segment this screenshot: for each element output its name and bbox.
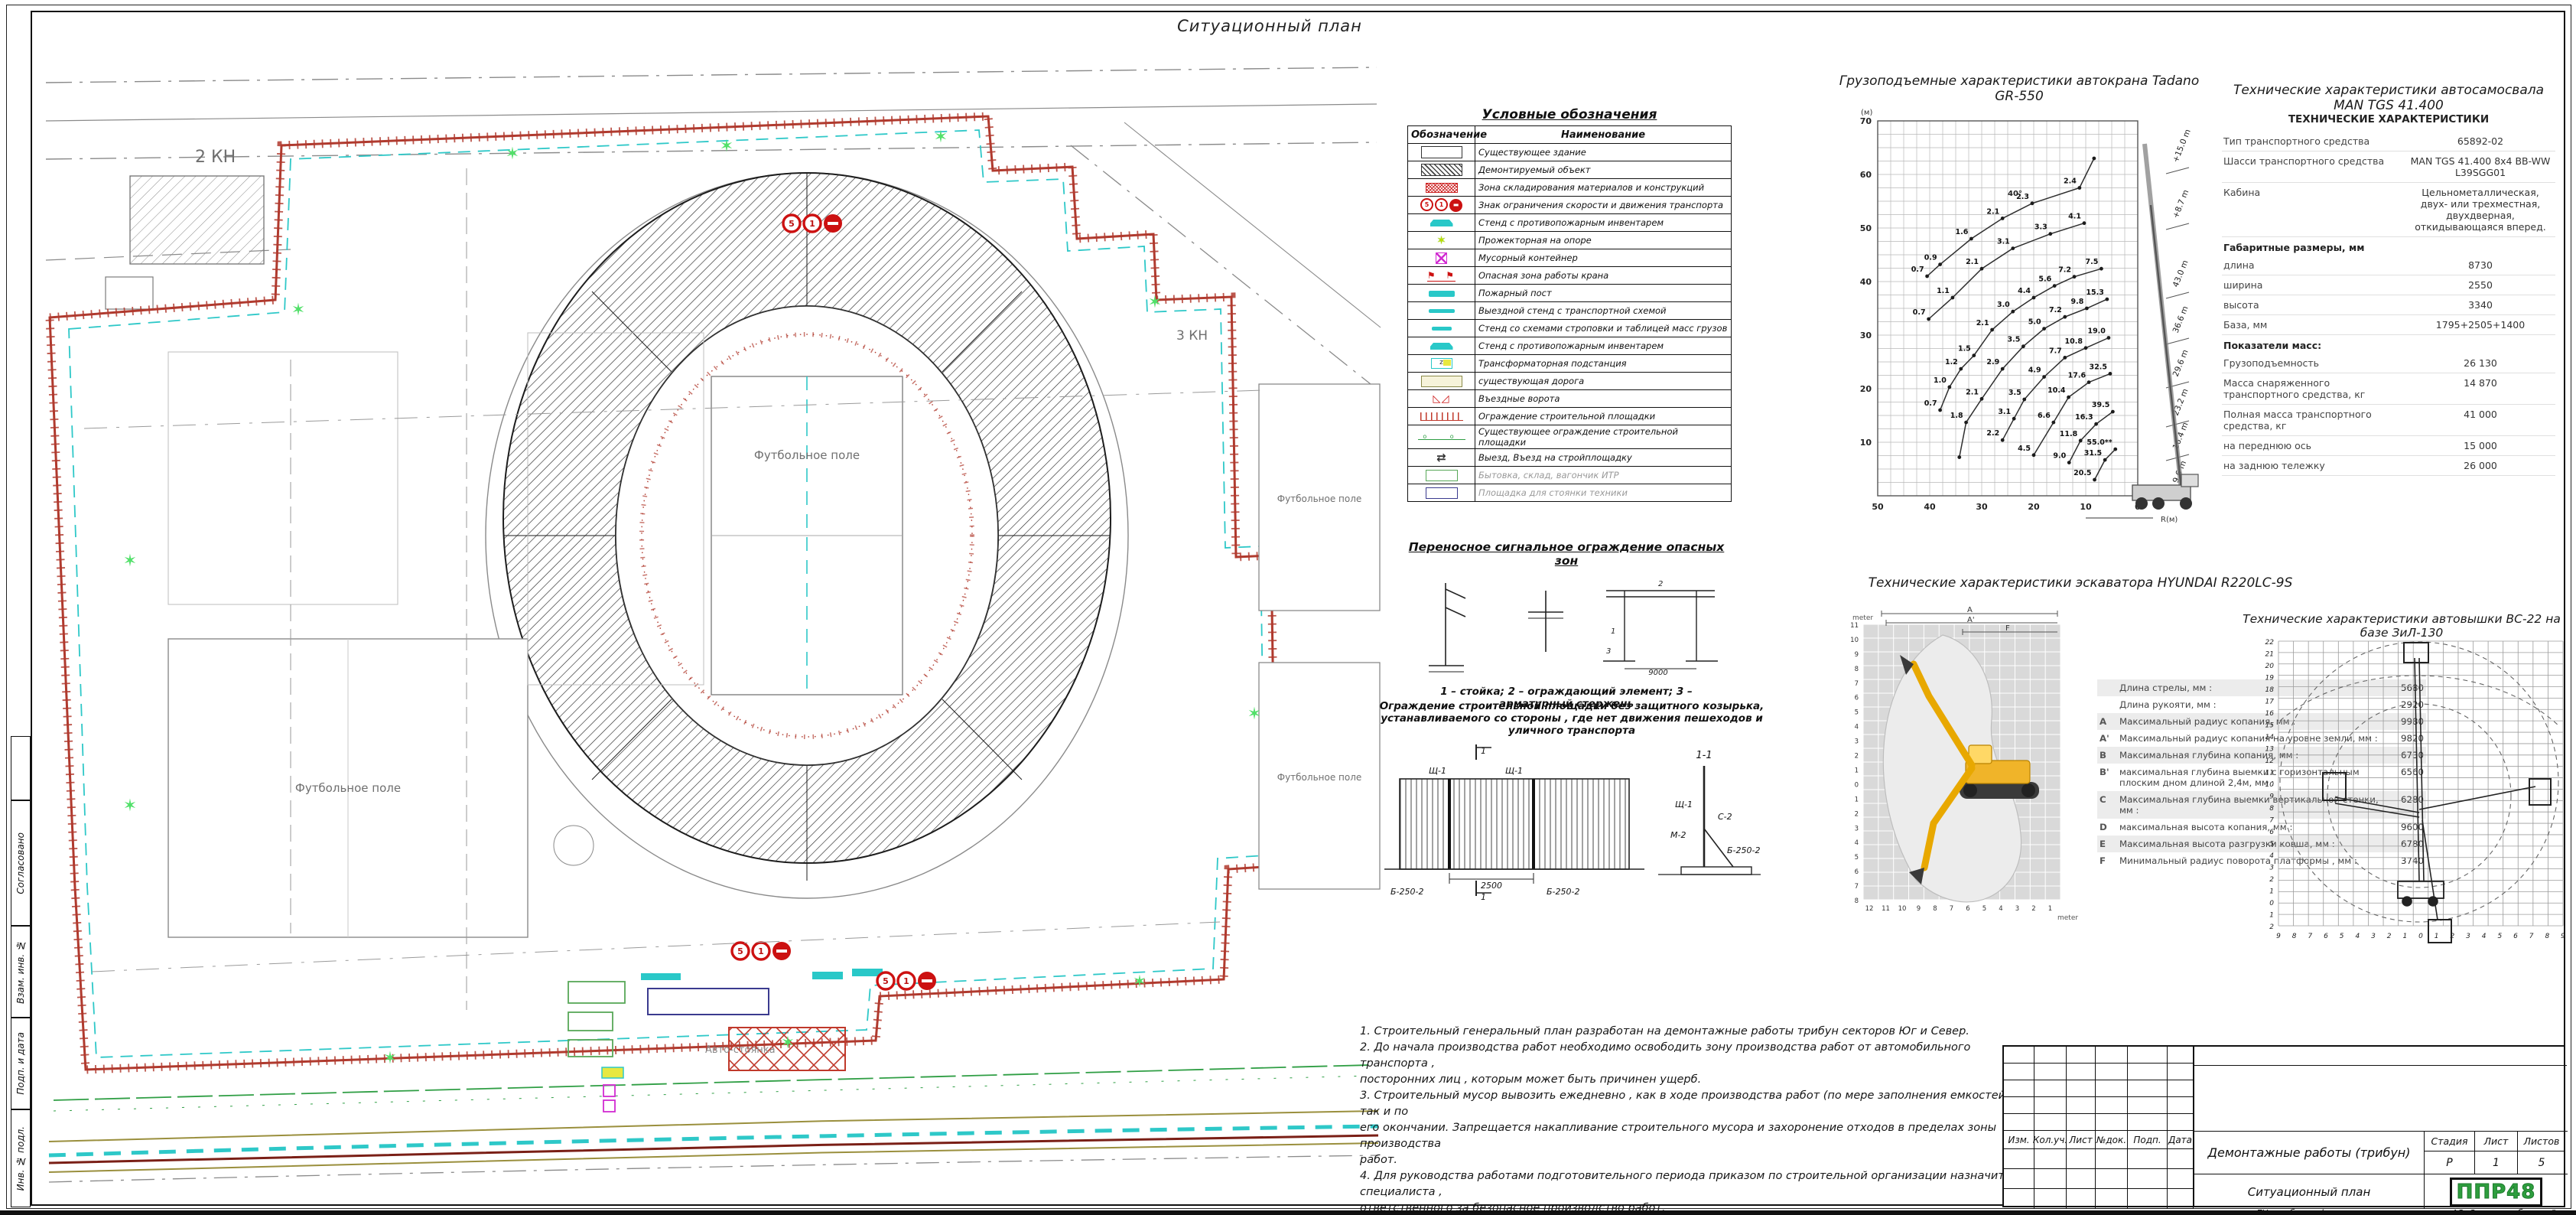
svg-text:10: 10 <box>1860 438 1872 448</box>
svg-text:8: 8 <box>1855 666 1859 673</box>
title-block: Изм.Кол.уч.Лист№док.Подп.Дата Демонтажны… <box>2002 1045 2565 1207</box>
svg-text:31.5: 31.5 <box>2084 449 2102 458</box>
svg-text:14: 14 <box>2265 734 2275 741</box>
rev-cell <box>2034 1064 2067 1080</box>
svg-text:2: 2 <box>1658 580 1663 588</box>
svg-text:4: 4 <box>2269 852 2274 860</box>
svg-text:Футбольное поле: Футбольное поле <box>1277 772 1362 783</box>
stamp-vzam-label: Взам. инв. № <box>15 940 26 1004</box>
svg-text:3: 3 <box>1855 738 1859 746</box>
svg-text:6: 6 <box>1855 695 1859 702</box>
rev-header: Лист <box>2067 1131 2096 1149</box>
stamp-inv: Инв. № подл. <box>11 1109 31 1207</box>
rev-cell <box>2034 1047 2067 1064</box>
svg-text:+15.0 m: +15.0 m <box>2171 128 2193 164</box>
svg-text:1: 1 <box>1481 892 1486 901</box>
svg-text:19: 19 <box>2265 675 2275 682</box>
man-section: Показатели масс: <box>2222 335 2555 353</box>
svg-text:1: 1 <box>1855 767 1859 774</box>
svg-text:36.6 m: 36.6 m <box>2171 305 2191 334</box>
svg-text:2.1: 2.1 <box>1976 319 1989 327</box>
existing-road-icon <box>1421 376 1462 387</box>
building-2kn: 2 КН <box>106 148 264 309</box>
svg-text:1: 1 <box>2402 933 2407 940</box>
svg-text:8: 8 <box>2269 805 2274 813</box>
man-title: Технические характеристики автосамосвала… <box>2218 83 2559 113</box>
svg-text:20.5: 20.5 <box>2073 469 2091 477</box>
fence-section-title1: Ограждение строительной площадки без защ… <box>1377 700 1767 712</box>
svg-text:8: 8 <box>2292 933 2297 940</box>
rev-cell <box>2004 1114 2034 1131</box>
svg-text:2.1: 2.1 <box>1986 207 1999 216</box>
svg-text:5: 5 <box>1855 709 1859 717</box>
stadium-field-label: Футбольное поле <box>754 448 860 462</box>
svg-text:F: F <box>2005 624 2010 633</box>
svg-text:0: 0 <box>2418 933 2423 940</box>
svg-text:20: 20 <box>1860 384 1872 394</box>
man-row: Полная масса транспортного средства, кг4… <box>2222 405 2555 436</box>
stadium: Футбольное поле <box>486 173 1128 898</box>
site-fence-icon <box>1420 412 1463 421</box>
legend-row: Демонтируемый объект <box>1408 161 1732 179</box>
man-section: Габаритные размеры, мм <box>2222 237 2555 256</box>
svg-text:10: 10 <box>2080 502 2092 512</box>
rev-header: Дата <box>2168 1131 2194 1149</box>
excavator-x-ticks: 121110987654321 <box>1865 905 2053 913</box>
rev-cell <box>2168 1169 2194 1189</box>
svg-text:1.8: 1.8 <box>1950 412 1963 420</box>
svg-text:4: 4 <box>1855 839 1859 847</box>
rev-cell <box>2034 1114 2067 1131</box>
svg-text:3.5: 3.5 <box>2008 389 2021 397</box>
svg-text:1: 1 <box>2048 905 2052 913</box>
stamp-agree-label: Согласовано <box>15 832 26 894</box>
man-row: высота3340 <box>2222 295 2555 315</box>
rev-cell <box>2128 1149 2168 1169</box>
legend-row: Ограждение строительной площадки <box>1408 408 1732 425</box>
svg-text:1: 1 <box>903 976 909 986</box>
svg-text:1: 1 <box>1611 627 1615 636</box>
drawing-sheet: Ситуационный план Согласовано Взам. инв.… <box>0 0 2576 1215</box>
svg-text:4: 4 <box>1999 905 2002 913</box>
svg-text:40: 40 <box>1924 502 1936 512</box>
fire-post-icon <box>1429 291 1455 297</box>
svg-text:2.9: 2.9 <box>1986 358 1999 366</box>
svg-text:17: 17 <box>2265 699 2275 706</box>
road-bottom <box>49 1111 1378 1182</box>
svg-text:2: 2 <box>2269 876 2274 884</box>
svg-text:✶: ✶ <box>291 301 305 320</box>
svg-text:Футбольное поле: Футбольное поле <box>295 781 401 795</box>
rev-cell <box>2067 1169 2096 1189</box>
crane-boom-labels: +15.0 m+8.7 m43.0 m36.6 m29.6 m23.2 m16.… <box>2166 128 2193 494</box>
svg-text:✶: ✶ <box>720 137 733 156</box>
rev-cell <box>2067 1047 2096 1064</box>
rev-cell <box>2034 1149 2067 1169</box>
man-row: КабинаЦельнометаллическая, двух- или тре… <box>2222 183 2555 237</box>
rev-cell <box>2034 1080 2067 1097</box>
rev-cell <box>2004 1047 2034 1064</box>
svg-text:4.4: 4.4 <box>2018 287 2031 295</box>
rev-cell <box>2168 1114 2194 1131</box>
svg-text:5: 5 <box>2269 841 2274 849</box>
svg-text:15.3: 15.3 <box>2086 288 2103 297</box>
svg-text:8: 8 <box>2545 933 2549 940</box>
legend-col-name: Наименование <box>1475 126 1732 144</box>
svg-text:(м): (м) <box>1861 109 1872 117</box>
rev-cell <box>2034 1097 2067 1114</box>
man-table: ТЕХНИЧЕСКИЕ ХАРАКТЕРИСТИКИ Тип транспорт… <box>2222 113 2555 476</box>
legend-row: 51▬Знак ограничения скорости и движения … <box>1408 197 1732 214</box>
svg-text:6: 6 <box>2324 933 2328 940</box>
tower-machine-icon <box>2323 643 2551 943</box>
svg-text:6: 6 <box>1966 905 1969 913</box>
rev-cell <box>2034 1169 2067 1189</box>
svg-text:8: 8 <box>1855 897 1859 905</box>
svg-text:2.2: 2.2 <box>1986 429 1999 438</box>
cabin-icon <box>1426 470 1458 481</box>
svg-text:20: 20 <box>2265 663 2275 670</box>
svg-text:✶: ✶ <box>1247 705 1261 724</box>
legend-row: Мусорный контейнер <box>1408 249 1732 267</box>
legend-row: Зона складирования материалов и конструк… <box>1408 179 1732 197</box>
man-row: Масса снаряженного транспортного средств… <box>2222 373 2555 405</box>
legend-row: Стенд с противопожарным инвентарем <box>1408 337 1732 355</box>
parking-area-icon <box>1426 487 1458 499</box>
svg-text:9: 9 <box>2276 933 2281 940</box>
signal-fence-block: Переносное сигнальное ограждение опасных… <box>1406 540 1727 710</box>
existing-fence-icon: o o <box>1418 435 1465 440</box>
project-name: Демонтажные работы (трибун) <box>2194 1131 2424 1174</box>
exit-stand-icon <box>1429 309 1455 313</box>
man-row: на переднюю ось15 000 <box>2222 436 2555 456</box>
rev-cell <box>2096 1064 2128 1080</box>
svg-text:2: 2 <box>1855 753 1859 761</box>
rev-cell <box>2004 1080 2034 1097</box>
trash-container-icon <box>1436 252 1447 264</box>
svg-text:55.0**: 55.0** <box>2086 438 2112 447</box>
svg-text:10.8: 10.8 <box>2065 337 2083 346</box>
svg-text:0.7: 0.7 <box>1913 308 1926 317</box>
stamp-inv-label: Инв. № подл. <box>15 1126 26 1191</box>
company-logo: ППР48 <box>2424 1174 2568 1209</box>
svg-text:30: 30 <box>1976 502 1988 512</box>
svg-text:1: 1 <box>2269 912 2274 920</box>
svg-text:✶: ✶ <box>383 1049 397 1068</box>
fence-section-block: Ограждение строительной площадки без защ… <box>1377 700 1767 904</box>
man-row: Тип транспортного средства65892-02 <box>2222 132 2555 151</box>
legend-row: ⚑ ⚑Опасная зона работы крана <box>1408 267 1732 285</box>
svg-text:0.9: 0.9 <box>1924 254 1937 262</box>
svg-text:1.2: 1.2 <box>1945 358 1958 366</box>
svg-text:✶: ✶ <box>781 1034 795 1053</box>
svg-text:50: 50 <box>1872 502 1884 512</box>
svg-text:18: 18 <box>2265 686 2275 694</box>
existing-building-icon <box>1421 146 1462 158</box>
svg-text:16: 16 <box>2265 710 2275 718</box>
svg-text:40: 40 <box>1860 277 1872 287</box>
svg-text:4.1: 4.1 <box>2068 213 2081 221</box>
rev-cell <box>2168 1149 2194 1169</box>
svg-text:1: 1 <box>809 219 815 229</box>
svg-text:1.6: 1.6 <box>1956 228 1969 236</box>
svg-text:2.1: 2.1 <box>1966 258 1979 266</box>
svg-text:7: 7 <box>1950 905 1953 913</box>
svg-text:5: 5 <box>1855 854 1859 862</box>
svg-text:4: 4 <box>2355 933 2360 940</box>
svg-text:Б-250-2: Б-250-2 <box>1390 887 1423 897</box>
svg-text:30: 30 <box>1860 331 1872 340</box>
rev-header: Кол.уч. <box>2034 1131 2067 1149</box>
rev-cell <box>2004 1064 2034 1080</box>
svg-text:7: 7 <box>2308 933 2312 940</box>
rev-cell <box>2004 1149 2034 1169</box>
signal-fence-drawing: 1 2 3 9000 <box>1406 568 1727 682</box>
svg-text:32.5: 32.5 <box>2090 363 2107 371</box>
legend-row: ⇄Выезд, Въезд на стройплощадку <box>1408 449 1732 467</box>
no-entry-sign-icon: ▬ <box>1449 199 1462 212</box>
note-line: 4. Для руководства работами подготовител… <box>1360 1168 2018 1200</box>
svg-text:3: 3 <box>1855 825 1859 832</box>
label-2kn: 2 КН <box>195 148 236 167</box>
svg-text:5.6: 5.6 <box>2038 275 2051 284</box>
rigging-stand-icon <box>1432 327 1452 331</box>
svg-text:5: 5 <box>737 946 743 956</box>
svg-text:43.0 m: 43.0 m <box>2171 259 2191 288</box>
svg-text:10: 10 <box>2265 781 2275 789</box>
svg-text:7.7: 7.7 <box>2049 347 2062 355</box>
man-row: длина8730 <box>2222 256 2555 275</box>
man-row: Грузоподъемность26 130 <box>2222 353 2555 373</box>
svg-text:3: 3 <box>2371 933 2376 940</box>
svg-text:1.1: 1.1 <box>1937 287 1950 295</box>
svg-text:Б-250-2: Б-250-2 <box>1547 887 1579 897</box>
demolished-object-icon <box>1421 164 1462 176</box>
existing-fence <box>54 1065 1369 1111</box>
svg-text:9: 9 <box>1855 651 1859 659</box>
svg-text:9.8: 9.8 <box>2071 298 2084 306</box>
svg-text:3.1: 3.1 <box>1997 238 2010 246</box>
svg-text:Щ-1: Щ-1 <box>1429 766 1446 776</box>
stamp-podp-label: Подп. и дата <box>15 1032 26 1095</box>
stamp-vzam: Взам. инв. № <box>11 926 31 1018</box>
rev-header: Изм. <box>2004 1131 2034 1149</box>
rev-cell <box>2004 1169 2034 1189</box>
legend-row: Стенд со схемами строповки и таблицей ма… <box>1408 320 1732 337</box>
stage-table: Стадия Лист Листов Р 1 5 <box>2424 1131 2568 1174</box>
svg-text:2.4: 2.4 <box>2064 178 2077 186</box>
svg-text:17.6: 17.6 <box>2068 372 2086 380</box>
rev-cell <box>2067 1149 2096 1169</box>
rev-cell <box>2128 1114 2168 1131</box>
sheet-value: 1 <box>2475 1151 2518 1174</box>
rev-cell <box>2067 1080 2096 1097</box>
svg-text:6: 6 <box>2513 933 2518 940</box>
svg-text:1: 1 <box>2269 888 2274 896</box>
rev-cell <box>2168 1064 2194 1080</box>
svg-text:5.0: 5.0 <box>2028 318 2041 327</box>
svg-text:2: 2 <box>2387 933 2392 940</box>
legend-row: ◺◿Въездные ворота <box>1408 390 1732 408</box>
rev-cell <box>2168 1189 2194 1209</box>
signal-fence-title: Переносное сигнальное ограждение опасных… <box>1406 540 1727 568</box>
legend-title: Условные обозначения <box>1407 107 1732 122</box>
rev-cell <box>2067 1189 2096 1209</box>
stamp-agree: Согласовано <box>11 800 31 926</box>
rev-cell <box>2096 1097 2128 1114</box>
svg-text:7: 7 <box>1855 680 1859 688</box>
parking-label: Авто-стоянка <box>705 1044 776 1056</box>
rev-cell <box>2128 1189 2168 1209</box>
revision-grid: Изм.Кол.уч.Лист№док.Подп.Дата <box>2004 1047 2194 1206</box>
svg-text:+8.7 m: +8.7 m <box>2171 188 2191 220</box>
legend-row: существующая дорога <box>1408 373 1732 390</box>
general-notes: 1. Строительный генеральный план разрабо… <box>1360 1024 2018 1215</box>
note-line: его окончании. Запрещается накапливание … <box>1360 1120 2018 1152</box>
svg-text:9: 9 <box>1917 905 1921 913</box>
svg-text:М-2: М-2 <box>1670 830 1686 840</box>
stage-value: Р <box>2425 1151 2475 1174</box>
svg-text:5: 5 <box>883 976 889 986</box>
tower-grid <box>2278 641 2563 926</box>
legend-row: ✶Прожекторная на опоре <box>1408 232 1732 249</box>
svg-text:0: 0 <box>1855 781 1859 789</box>
man-row: Шасси транспортного средстваMAN TGS 41.4… <box>2222 151 2555 183</box>
svg-text:С-2: С-2 <box>1718 812 1732 822</box>
svg-text:5: 5 <box>789 219 795 229</box>
fence-section-title2: устанавливаемого со стороны , где нет дв… <box>1377 712 1767 737</box>
crane-danger-zone-icon: ⚑ ⚑ <box>1427 270 1456 282</box>
man-row: на заднюю тележку26 000 <box>2222 456 2555 476</box>
svg-text:13: 13 <box>2265 746 2275 754</box>
legend-row: Существующее здание <box>1408 144 1732 161</box>
label-3kn: 3 КН <box>1176 328 1208 344</box>
svg-text:1: 1 <box>1855 796 1859 803</box>
svg-text:15: 15 <box>2265 722 2275 730</box>
note-line: 2. До начала производства работ необходи… <box>1360 1040 2018 1072</box>
note-line: 3. Строительный мусор вывозить ежедневно… <box>1360 1088 2018 1120</box>
svg-text:7: 7 <box>2269 817 2274 825</box>
storage-zone-icon <box>1426 183 1458 193</box>
svg-text:4.5: 4.5 <box>2018 445 2031 453</box>
rev-cell <box>2096 1189 2128 1209</box>
tower-range-diagram: 22212019181716151413121110987654321012 9… <box>2245 629 2574 966</box>
svg-text:10: 10 <box>1850 637 1859 644</box>
rev-cell <box>2128 1169 2168 1189</box>
svg-text:10.4: 10.4 <box>2047 386 2066 395</box>
svg-text:✶: ✶ <box>123 552 137 571</box>
note-line: 1. Строительный генеральный план разрабо… <box>1360 1024 2018 1040</box>
svg-text:3: 3 <box>2015 905 2019 913</box>
svg-text:A: A <box>1967 606 1973 614</box>
svg-text:✶: ✶ <box>506 145 519 164</box>
svg-text:3.1: 3.1 <box>1998 408 2011 416</box>
tower-x-ticks: 9876543210123456789 <box>2276 933 2565 940</box>
svg-text:9000: 9000 <box>1648 669 1667 677</box>
fence-section-drawing: Щ-1 Щ-1 Б-250-2 Б-250-2 2500 1 1 1-1 Щ-1… <box>1377 737 1767 901</box>
rev-cell <box>2096 1080 2128 1097</box>
svg-text:11: 11 <box>2265 770 2274 777</box>
legend-row: zТрансформаторная подстанция <box>1408 355 1732 373</box>
man-row: ширина2550 <box>2222 275 2555 295</box>
svg-text:2500: 2500 <box>1481 881 1502 891</box>
svg-text:3: 3 <box>1606 647 1611 656</box>
legend-table: Обозначение Наименование Существующее зд… <box>1407 125 1732 502</box>
title-block-right: Демонтажные работы (трибун) Стадия Лист … <box>2194 1047 2567 1206</box>
svg-text:Б-250-2: Б-250-2 <box>1727 845 1760 855</box>
svg-text:39.5: 39.5 <box>2092 401 2109 409</box>
svg-text:3.0: 3.0 <box>1997 301 2010 309</box>
svg-text:21: 21 <box>2265 651 2274 659</box>
svg-text:9.0: 9.0 <box>2053 452 2066 461</box>
sheets-label: Листов <box>2518 1132 2565 1151</box>
svg-text:✶: ✶ <box>1148 293 1162 312</box>
rev-cell <box>2168 1080 2194 1097</box>
rev-cell <box>2096 1047 2128 1064</box>
legend-col-symbol: Обозначение <box>1408 126 1475 144</box>
rev-cell <box>2128 1097 2168 1114</box>
man-row: База, мм1795+2505+1400 <box>2222 315 2555 335</box>
rev-cell <box>2128 1080 2168 1097</box>
svg-text:0: 0 <box>2269 900 2274 907</box>
svg-text:meter: meter <box>1852 614 1873 622</box>
svg-text:2: 2 <box>1855 810 1859 818</box>
svg-text:11: 11 <box>1882 905 1890 913</box>
rev-cell <box>2034 1189 2067 1209</box>
svg-text:70: 70 <box>1860 116 1872 126</box>
rev-cell <box>2096 1114 2128 1131</box>
note-line: посторонних лиц , которым может быть при… <box>1360 1072 2018 1088</box>
svg-text:29.6 m: 29.6 m <box>2171 348 2191 378</box>
svg-text:9: 9 <box>2269 793 2274 801</box>
svg-text:3.3: 3.3 <box>2034 223 2047 232</box>
svg-text:4.9: 4.9 <box>2028 366 2041 375</box>
sign-icon: 1 <box>1435 198 1448 211</box>
svg-text:✶: ✶ <box>123 796 137 816</box>
svg-text:11: 11 <box>1850 622 1859 630</box>
site-plan: 2 КН КН 3 КН <box>38 31 1384 1194</box>
svg-text:9: 9 <box>2561 933 2565 940</box>
svg-text:22: 22 <box>2265 639 2275 647</box>
projector-icon: ✶ <box>1436 233 1446 247</box>
svg-text:1.0: 1.0 <box>1934 376 1947 385</box>
rev-cell <box>2128 1047 2168 1064</box>
svg-text:6.6: 6.6 <box>2038 412 2051 420</box>
svg-text:8: 8 <box>1933 905 1937 913</box>
svg-text:4: 4 <box>2482 933 2487 940</box>
svg-text:10: 10 <box>1898 905 1907 913</box>
crane-series: 20.531.555.0**9.011.816.339.54.56.610.41… <box>1911 157 2117 482</box>
logo-text: ППР48 <box>2450 1178 2543 1207</box>
svg-text:1.5: 1.5 <box>1958 345 1971 353</box>
legend-row: Площадка для стоянки техники <box>1408 484 1732 502</box>
sheet-bottom-edge <box>0 1210 2576 1215</box>
speed-sign-icon: 5 <box>1420 198 1433 211</box>
legend-row: Выездной стенд с транспортной схемой <box>1408 302 1732 320</box>
svg-text:20: 20 <box>2028 502 2040 512</box>
rev-header: Подп. <box>2128 1131 2168 1149</box>
legend-row: o oСуществующее ограждение строительной … <box>1408 425 1732 449</box>
excavator-y-ticks: 1110987654321012345678 <box>1850 622 1859 905</box>
svg-text:7.2: 7.2 <box>2058 266 2071 275</box>
rev-cell <box>2067 1064 2096 1080</box>
note-line: работ. <box>1360 1152 2018 1168</box>
excavator-title: Технические характеристики эскаватора HY… <box>1813 575 2348 591</box>
svg-text:5: 5 <box>2340 933 2344 940</box>
sheets-value: 5 <box>2518 1151 2565 1174</box>
fire-stand-icon <box>1430 220 1453 226</box>
svg-text:0.7: 0.7 <box>1911 265 1924 274</box>
